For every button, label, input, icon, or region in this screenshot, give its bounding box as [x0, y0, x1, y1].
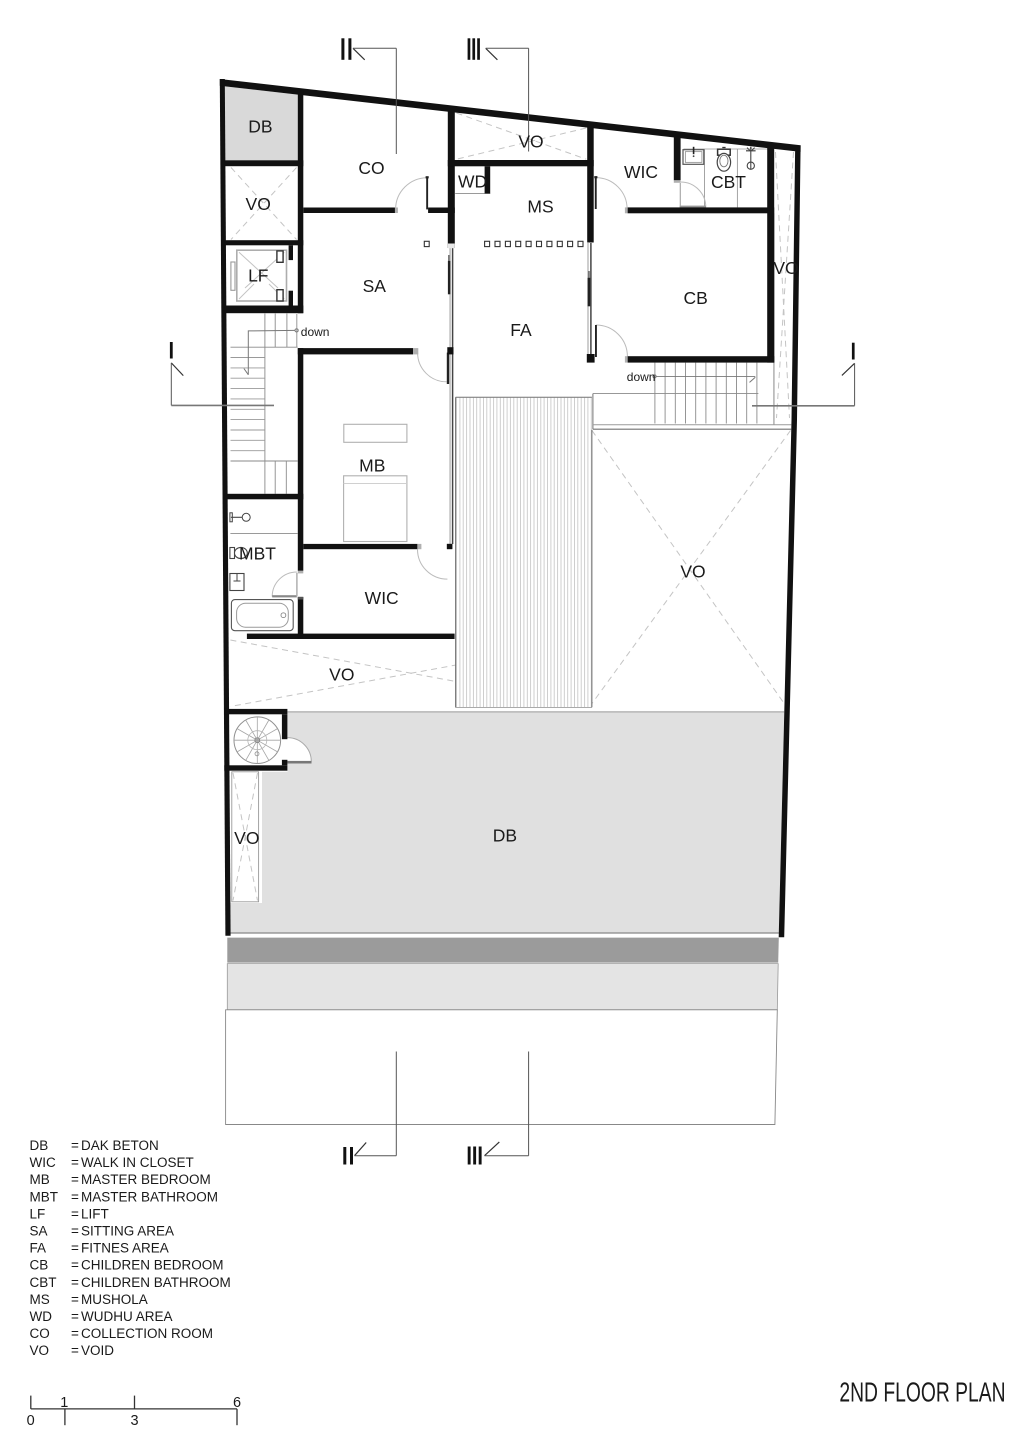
svg-text:=: =	[71, 1258, 79, 1273]
svg-text:SITTING AREA: SITTING AREA	[81, 1224, 174, 1239]
svg-text:CB: CB	[30, 1258, 49, 1273]
svg-text:FA: FA	[30, 1241, 47, 1256]
svg-text:LIFT: LIFT	[81, 1206, 109, 1221]
svg-text:WIC: WIC	[365, 588, 399, 608]
svg-text:MASTER BEDROOM: MASTER BEDROOM	[81, 1172, 211, 1187]
svg-text:MASTER BATHROOM: MASTER BATHROOM	[81, 1189, 218, 1204]
svg-text:MB: MB	[30, 1172, 50, 1187]
svg-text:WUDHU AREA: WUDHU AREA	[81, 1309, 173, 1324]
svg-text:MB: MB	[359, 455, 385, 475]
svg-text:DB: DB	[493, 825, 517, 845]
svg-text:VOID: VOID	[81, 1343, 114, 1358]
svg-text:=: =	[71, 1326, 79, 1341]
svg-text:DAK BETON: DAK BETON	[81, 1138, 159, 1153]
svg-text:CB: CB	[684, 288, 708, 308]
svg-text:WALK IN CLOSET: WALK IN CLOSET	[81, 1155, 194, 1170]
svg-text:MBT: MBT	[30, 1189, 59, 1204]
svg-text:=: =	[71, 1189, 79, 1204]
svg-text:VO: VO	[773, 258, 798, 278]
svg-text:VO: VO	[246, 194, 271, 214]
svg-text:=: =	[71, 1172, 79, 1187]
svg-text:=: =	[71, 1292, 79, 1307]
svg-text:MUSHOLA: MUSHOLA	[81, 1292, 148, 1307]
svg-text:VO: VO	[234, 828, 259, 848]
svg-text:WD: WD	[458, 172, 487, 192]
svg-text:CHILDREN BEDROOM: CHILDREN BEDROOM	[81, 1258, 224, 1273]
svg-text:FA: FA	[510, 320, 532, 340]
svg-text:WD: WD	[30, 1309, 53, 1324]
svg-text:=: =	[71, 1275, 79, 1290]
svg-text:MBT: MBT	[239, 544, 276, 564]
svg-text:CO: CO	[358, 158, 384, 178]
svg-text:DB: DB	[30, 1138, 49, 1153]
svg-text:VO: VO	[30, 1343, 50, 1358]
svg-text:WIC: WIC	[30, 1155, 56, 1170]
svg-text:=: =	[71, 1155, 79, 1170]
svg-text:SA: SA	[363, 276, 387, 296]
svg-text:CBT: CBT	[711, 172, 746, 192]
svg-text:COLLECTION ROOM: COLLECTION ROOM	[81, 1326, 213, 1341]
svg-text:down: down	[627, 370, 656, 384]
svg-text:0: 0	[27, 1413, 35, 1429]
svg-text:CO: CO	[30, 1326, 50, 1341]
svg-text:1: 1	[60, 1395, 68, 1411]
svg-text:MS: MS	[527, 196, 553, 216]
svg-text:DB: DB	[248, 116, 272, 136]
svg-text:LF: LF	[248, 266, 268, 286]
svg-text:=: =	[71, 1206, 79, 1221]
svg-text:2ND FLOOR PLAN: 2ND FLOOR PLAN	[839, 1376, 1005, 1407]
svg-text:down: down	[301, 325, 330, 339]
svg-text:=: =	[71, 1309, 79, 1324]
svg-text:SA: SA	[30, 1224, 48, 1239]
svg-text:LF: LF	[30, 1206, 46, 1221]
svg-text:=: =	[71, 1343, 79, 1358]
svg-text:CHILDREN BATHROOM: CHILDREN BATHROOM	[81, 1275, 231, 1290]
svg-text:3: 3	[130, 1413, 138, 1429]
svg-text:FITNES AREA: FITNES AREA	[81, 1241, 169, 1256]
svg-text:CBT: CBT	[30, 1275, 57, 1290]
svg-text:VO: VO	[680, 562, 705, 582]
svg-text:MS: MS	[30, 1292, 50, 1307]
svg-text:=: =	[71, 1241, 79, 1256]
svg-text:VO: VO	[518, 132, 543, 152]
svg-text:=: =	[71, 1138, 79, 1153]
svg-text:=: =	[71, 1224, 79, 1239]
svg-text:VO: VO	[329, 665, 354, 685]
svg-text:WIC: WIC	[624, 162, 658, 182]
svg-text:6: 6	[233, 1395, 241, 1411]
